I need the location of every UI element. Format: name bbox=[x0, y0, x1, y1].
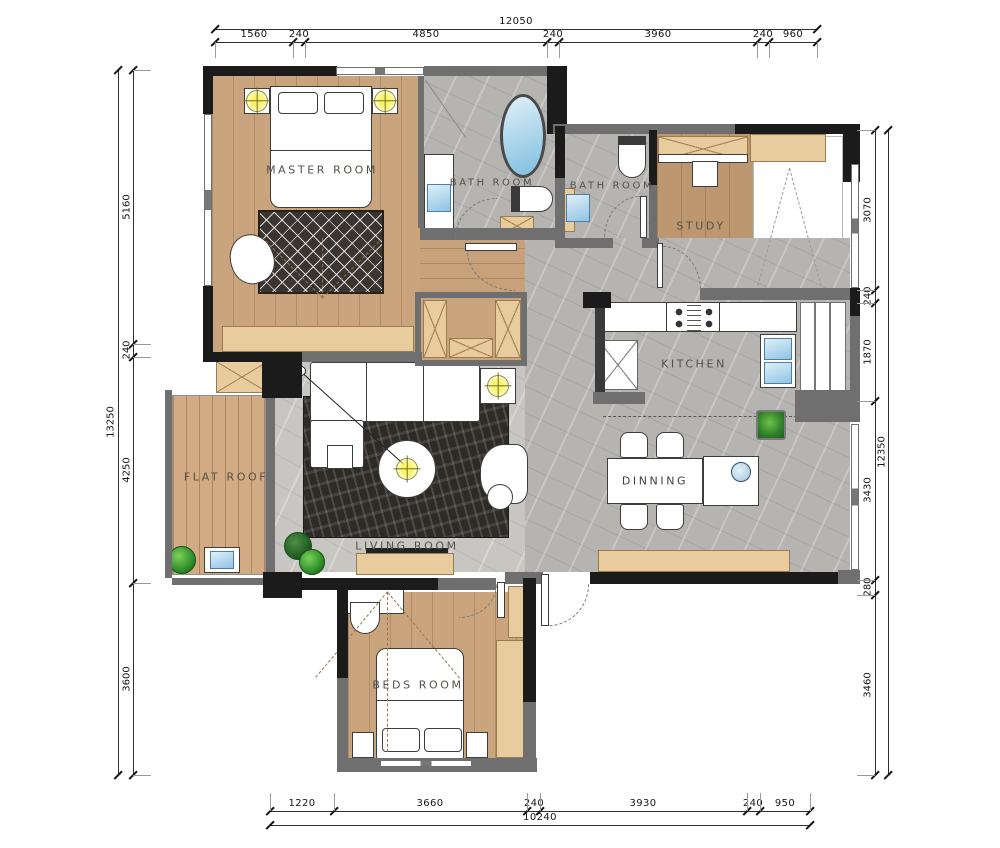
balcony-sliding-door bbox=[800, 302, 846, 392]
wall-segment bbox=[523, 578, 536, 702]
dining-chair bbox=[620, 504, 648, 530]
dim-label: 4850 bbox=[412, 29, 439, 40]
bed-blanket-line bbox=[376, 700, 464, 701]
wall-column bbox=[583, 292, 611, 308]
study-chair bbox=[692, 161, 718, 187]
room-label-beds: BEDS ROOM bbox=[372, 679, 463, 692]
dim-label: 12350 bbox=[877, 436, 888, 468]
wall-segment bbox=[203, 352, 271, 362]
window bbox=[380, 760, 472, 767]
pillow bbox=[324, 92, 364, 114]
dim-line-left-segments bbox=[133, 70, 134, 775]
wall-column bbox=[263, 572, 302, 598]
room-label-bath1: BATH ROOM bbox=[450, 178, 534, 189]
master-door-leaf bbox=[465, 243, 517, 251]
dim-line-right-total bbox=[888, 130, 889, 775]
dim-ext bbox=[747, 793, 748, 811]
dim-ext bbox=[810, 793, 811, 811]
wall-segment bbox=[590, 572, 838, 584]
footstool bbox=[487, 484, 513, 510]
dim-label: 960 bbox=[783, 29, 803, 40]
dim-ext bbox=[215, 42, 216, 58]
room-label-study: STUDY bbox=[676, 220, 725, 233]
room-label-living: LIVING ROOM bbox=[355, 540, 458, 553]
dim-label: 3960 bbox=[644, 29, 671, 40]
dim-ext bbox=[133, 775, 151, 776]
dim-ext bbox=[817, 42, 818, 58]
beds-cabinet bbox=[508, 586, 524, 638]
beds-wardrobe bbox=[496, 640, 524, 758]
dim-label: 12050 bbox=[499, 16, 533, 27]
dim-ext bbox=[547, 42, 548, 58]
pillow bbox=[424, 728, 462, 752]
wall-segment bbox=[555, 126, 565, 178]
dim-ext bbox=[857, 303, 875, 304]
dining-chair bbox=[656, 504, 684, 530]
wall-segment bbox=[649, 185, 657, 238]
dim-label: 950 bbox=[775, 798, 795, 809]
tv-cabinet bbox=[356, 553, 454, 575]
bed-blanket-line bbox=[270, 150, 372, 151]
wall-column bbox=[262, 352, 302, 398]
dining-island bbox=[703, 456, 759, 506]
bath2-door-leaf bbox=[640, 196, 647, 238]
ceiling-light-icon bbox=[374, 90, 396, 112]
dim-ext bbox=[133, 583, 151, 584]
ottoman bbox=[327, 445, 353, 469]
wall-segment bbox=[553, 124, 737, 134]
ceiling-light-icon bbox=[487, 375, 509, 397]
entry-door-arc bbox=[549, 584, 589, 626]
wall-segment bbox=[203, 66, 213, 114]
dim-ext bbox=[769, 42, 770, 58]
room-label-dining: DINNING bbox=[622, 475, 688, 488]
dim-line-left-total bbox=[118, 70, 119, 775]
dim-tick bbox=[806, 821, 815, 830]
dim-label: 4250 bbox=[122, 457, 133, 482]
floor-plan: MASTER ROOM BATH ROOM BATH ROOM STUDY KI… bbox=[0, 0, 1000, 848]
dining-chair bbox=[620, 432, 648, 458]
wall-segment bbox=[593, 392, 645, 404]
dim-ext bbox=[857, 401, 875, 402]
dim-label: 5160 bbox=[122, 194, 133, 219]
dim-ext bbox=[527, 793, 528, 811]
dim-label: 13250 bbox=[106, 406, 117, 438]
dim-ext bbox=[857, 595, 875, 596]
window bbox=[336, 67, 424, 75]
window bbox=[851, 424, 859, 570]
closet-cabinet-right bbox=[495, 300, 521, 358]
dim-ext bbox=[857, 130, 875, 131]
wall-segment bbox=[523, 702, 536, 762]
wall-segment bbox=[555, 238, 613, 248]
wall-segment bbox=[203, 66, 337, 76]
wall-segment bbox=[649, 130, 657, 185]
ceiling-light-icon bbox=[396, 458, 418, 480]
dim-ext bbox=[559, 42, 560, 58]
dim-label: 3070 bbox=[863, 197, 874, 222]
dim-ext bbox=[334, 793, 335, 811]
wall-partition bbox=[418, 76, 424, 228]
dashed-line bbox=[387, 592, 388, 752]
basin-water bbox=[210, 551, 234, 569]
wall-segment bbox=[595, 308, 605, 392]
window bbox=[851, 164, 859, 288]
room-label-bath2: BATH ROOM bbox=[570, 181, 654, 192]
entry-door-leaf bbox=[541, 574, 549, 626]
wall-segment bbox=[850, 288, 860, 316]
wall-segment bbox=[424, 66, 548, 76]
dim-ext bbox=[305, 42, 306, 58]
bathtub bbox=[500, 94, 546, 178]
room-label-master: MASTER ROOM bbox=[266, 164, 378, 177]
stove bbox=[666, 302, 720, 332]
dim-label: 1560 bbox=[240, 29, 267, 40]
dashed-line bbox=[322, 238, 323, 298]
plant bbox=[756, 410, 786, 440]
wall-segment bbox=[735, 124, 860, 134]
dining-chair bbox=[656, 432, 684, 458]
kitchen-sink-basin bbox=[764, 338, 792, 360]
dim-ext bbox=[133, 344, 151, 345]
dim-tick bbox=[813, 25, 822, 34]
dim-ext bbox=[857, 580, 875, 581]
wall-segment bbox=[203, 286, 213, 354]
dim-label: 10240 bbox=[523, 812, 557, 823]
wall-segment bbox=[850, 316, 860, 390]
window bbox=[204, 114, 212, 286]
beds-door-leaf bbox=[497, 582, 505, 618]
dim-line-bottom-total bbox=[270, 825, 810, 826]
pillow bbox=[278, 92, 318, 114]
toilet-tank bbox=[511, 186, 520, 212]
dim-ext bbox=[760, 793, 761, 811]
kettle bbox=[731, 462, 751, 482]
dim-ext bbox=[857, 775, 875, 776]
dim-label: 3930 bbox=[629, 798, 656, 809]
wall-segment bbox=[172, 578, 268, 585]
wall-segment bbox=[266, 398, 275, 572]
dim-label: 1220 bbox=[288, 798, 315, 809]
nightstand bbox=[352, 732, 374, 758]
dim-tick bbox=[114, 771, 123, 780]
closet-cabinet-left bbox=[423, 300, 447, 358]
dim-label: 3600 bbox=[122, 666, 133, 691]
wall-segment bbox=[700, 288, 850, 300]
master-wardrobe bbox=[222, 326, 414, 352]
bath2-sink bbox=[566, 194, 590, 222]
flat-roof-cabinet bbox=[216, 361, 268, 393]
closet-bench bbox=[449, 338, 493, 358]
dim-ext bbox=[270, 793, 271, 811]
dim-ext bbox=[757, 42, 758, 58]
dim-label: 1870 bbox=[863, 339, 874, 364]
wall-segment bbox=[337, 678, 348, 770]
dim-ext bbox=[857, 290, 875, 291]
study-top-cabinet bbox=[750, 134, 826, 162]
dim-label: 3430 bbox=[863, 477, 874, 502]
nightstand bbox=[466, 732, 488, 758]
dim-tick bbox=[884, 771, 893, 780]
dim-label: 3460 bbox=[863, 672, 874, 697]
dim-ext bbox=[133, 357, 151, 358]
dim-label: 3660 bbox=[416, 798, 443, 809]
ceiling-light-icon bbox=[246, 90, 268, 112]
dim-ext bbox=[293, 42, 294, 58]
dining-sideboard bbox=[598, 550, 790, 572]
toilet-tank bbox=[618, 136, 646, 145]
bath1-sink bbox=[427, 184, 451, 212]
wall-segment bbox=[795, 390, 860, 422]
plant bbox=[168, 546, 196, 574]
wall-segment bbox=[300, 578, 438, 590]
dim-ext bbox=[133, 70, 151, 71]
dim-ext bbox=[540, 793, 541, 811]
plant bbox=[299, 549, 325, 575]
wall-segment bbox=[337, 590, 348, 678]
wall-segment bbox=[165, 390, 172, 578]
sofa bbox=[310, 362, 480, 422]
room-label-flat-roof: FLAT ROOF bbox=[184, 471, 268, 484]
room-label-kitchen: KITCHEN bbox=[661, 358, 727, 371]
wall-segment bbox=[838, 570, 860, 584]
kitchen-sink-basin bbox=[764, 362, 792, 384]
